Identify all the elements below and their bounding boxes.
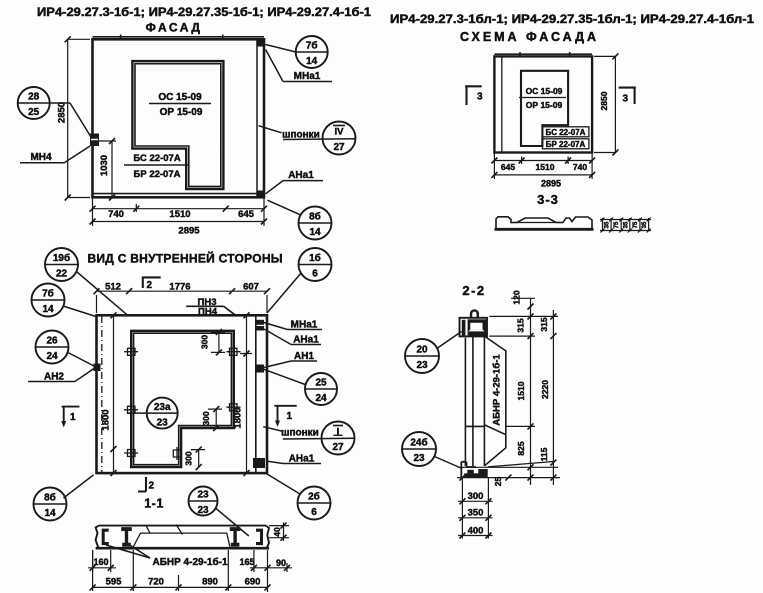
svg-text:2220: 2220 — [540, 380, 550, 399]
svg-text:400: 400 — [468, 526, 484, 537]
svg-text:ОР 15-09: ОР 15-09 — [160, 107, 203, 118]
svg-text:ВИД С ВНУТРЕННЕЙ СТОРОНЫ: ВИД С ВНУТРЕННЕЙ СТОРОНЫ — [88, 251, 283, 266]
svg-text:740: 740 — [108, 209, 124, 220]
svg-text:20: 20 — [416, 345, 428, 356]
svg-text:2895: 2895 — [541, 179, 561, 189]
svg-text:75: 75 — [614, 221, 620, 228]
svg-text:6: 6 — [312, 269, 318, 280]
svg-text:1: 1 — [287, 411, 293, 422]
svg-text:1510: 1510 — [536, 162, 555, 172]
svg-text:23: 23 — [413, 453, 425, 464]
svg-text:7б: 7б — [306, 40, 318, 52]
svg-text:23: 23 — [157, 418, 169, 429]
svg-text:2895: 2895 — [178, 226, 200, 237]
svg-text:ОР 15-09: ОР 15-09 — [526, 100, 563, 110]
svg-text:2: 2 — [147, 280, 153, 291]
svg-text:8б: 8б — [44, 492, 56, 504]
svg-text:1510: 1510 — [516, 381, 526, 400]
svg-text:14: 14 — [44, 508, 56, 519]
svg-text:ОС 15-09: ОС 15-09 — [158, 92, 202, 103]
svg-text:300: 300 — [201, 411, 211, 425]
svg-text:645: 645 — [238, 209, 255, 220]
svg-text:26: 26 — [46, 336, 58, 347]
svg-text:3: 3 — [623, 94, 629, 105]
svg-text:1030: 1030 — [99, 155, 110, 176]
svg-text:1б: 1б — [309, 252, 321, 264]
svg-text:740: 740 — [573, 162, 587, 172]
svg-text:25: 25 — [28, 107, 40, 118]
svg-text:23: 23 — [197, 505, 209, 516]
svg-text:595: 595 — [106, 577, 123, 588]
svg-text:825: 825 — [516, 441, 526, 455]
svg-text:БР 22-07А: БР 22-07А — [546, 140, 586, 149]
svg-text:645: 645 — [501, 162, 515, 172]
svg-text:АБНР 4-29-1б-1: АБНР 4-29-1б-1 — [152, 556, 227, 568]
svg-text:1-1: 1-1 — [144, 497, 164, 511]
svg-text:8б: 8б — [309, 211, 321, 223]
svg-text:3-3: 3-3 — [537, 192, 559, 207]
svg-text:ИР4-29.27.3-1б-1; ИР4-29.27.35: ИР4-29.27.3-1б-1; ИР4-29.27.35-1б-1; ИР4… — [37, 7, 372, 19]
svg-text:315: 315 — [516, 318, 526, 332]
svg-text:315: 315 — [539, 317, 549, 331]
svg-text:300: 300 — [468, 491, 484, 502]
svg-text:2850: 2850 — [57, 102, 68, 123]
svg-text:2850: 2850 — [599, 91, 609, 110]
svg-text:БС 22-07А: БС 22-07А — [133, 153, 181, 164]
svg-text:35: 35 — [642, 221, 648, 228]
svg-text:35: 35 — [624, 221, 630, 228]
svg-text:1800: 1800 — [101, 409, 112, 430]
svg-text:120: 120 — [512, 290, 522, 304]
svg-text:2б: 2б — [308, 491, 320, 503]
svg-text:БР 22-07А: БР 22-07А — [134, 169, 181, 180]
svg-text:28: 28 — [28, 92, 40, 103]
svg-text:300: 300 — [200, 335, 210, 349]
svg-text:607: 607 — [243, 282, 259, 293]
svg-text:720: 720 — [148, 577, 164, 588]
svg-text:35: 35 — [605, 221, 611, 228]
svg-text:1510: 1510 — [169, 209, 190, 220]
svg-text:2-2: 2-2 — [462, 283, 485, 298]
svg-text:23: 23 — [416, 360, 428, 371]
svg-text:24: 24 — [315, 393, 327, 404]
svg-text:75: 75 — [633, 221, 639, 228]
svg-text:40: 40 — [272, 527, 282, 537]
svg-text:14: 14 — [309, 227, 321, 238]
svg-text:ФАСАД: ФАСАД — [146, 21, 203, 35]
svg-text:IV: IV — [335, 127, 345, 138]
svg-text:ИР4-29.27.3-1бл-1; ИР4-29.27.3: ИР4-29.27.3-1бл-1; ИР4-29.27.35-1бл-1; И… — [390, 14, 755, 26]
svg-text:14: 14 — [306, 56, 318, 67]
svg-text:890: 890 — [202, 577, 218, 588]
svg-text:ОС 15-09: ОС 15-09 — [526, 86, 563, 96]
svg-text:300: 300 — [184, 451, 194, 465]
svg-text:512: 512 — [105, 282, 121, 293]
svg-text:22: 22 — [56, 269, 68, 280]
svg-text:25: 25 — [315, 378, 327, 389]
svg-text:I: I — [337, 427, 340, 438]
svg-text:7б: 7б — [42, 288, 54, 300]
svg-text:АБНР 4-29-1б-1: АБНР 4-29-1б-1 — [492, 354, 503, 426]
svg-text:БС 22-07А: БС 22-07А — [546, 128, 586, 137]
svg-text:23: 23 — [197, 490, 209, 501]
svg-text:МН4: МН4 — [30, 152, 52, 163]
svg-text:350: 350 — [468, 508, 484, 519]
svg-text:шпонки: шпонки — [281, 428, 319, 439]
svg-text:АНа1: АНа1 — [288, 170, 314, 181]
svg-text:ПН4: ПН4 — [198, 307, 218, 318]
svg-text:165: 165 — [239, 557, 254, 567]
svg-text:27: 27 — [333, 142, 345, 153]
svg-text:1: 1 — [70, 412, 76, 423]
svg-text:1776: 1776 — [169, 282, 190, 293]
svg-text:14: 14 — [42, 304, 54, 315]
svg-text:МНа1: МНа1 — [294, 71, 321, 82]
svg-text:90: 90 — [276, 558, 286, 568]
svg-text:23а: 23а — [154, 402, 171, 413]
svg-text:6: 6 — [311, 507, 317, 518]
svg-text:2: 2 — [149, 481, 155, 492]
svg-text:24б: 24б — [410, 437, 427, 449]
svg-text:115: 115 — [539, 447, 549, 461]
svg-text:24: 24 — [46, 351, 58, 362]
svg-text:690: 690 — [245, 577, 261, 588]
svg-text:27: 27 — [332, 442, 344, 453]
svg-text:3: 3 — [477, 92, 483, 103]
svg-text:19б: 19б — [53, 252, 70, 264]
svg-text:25: 25 — [493, 477, 503, 487]
